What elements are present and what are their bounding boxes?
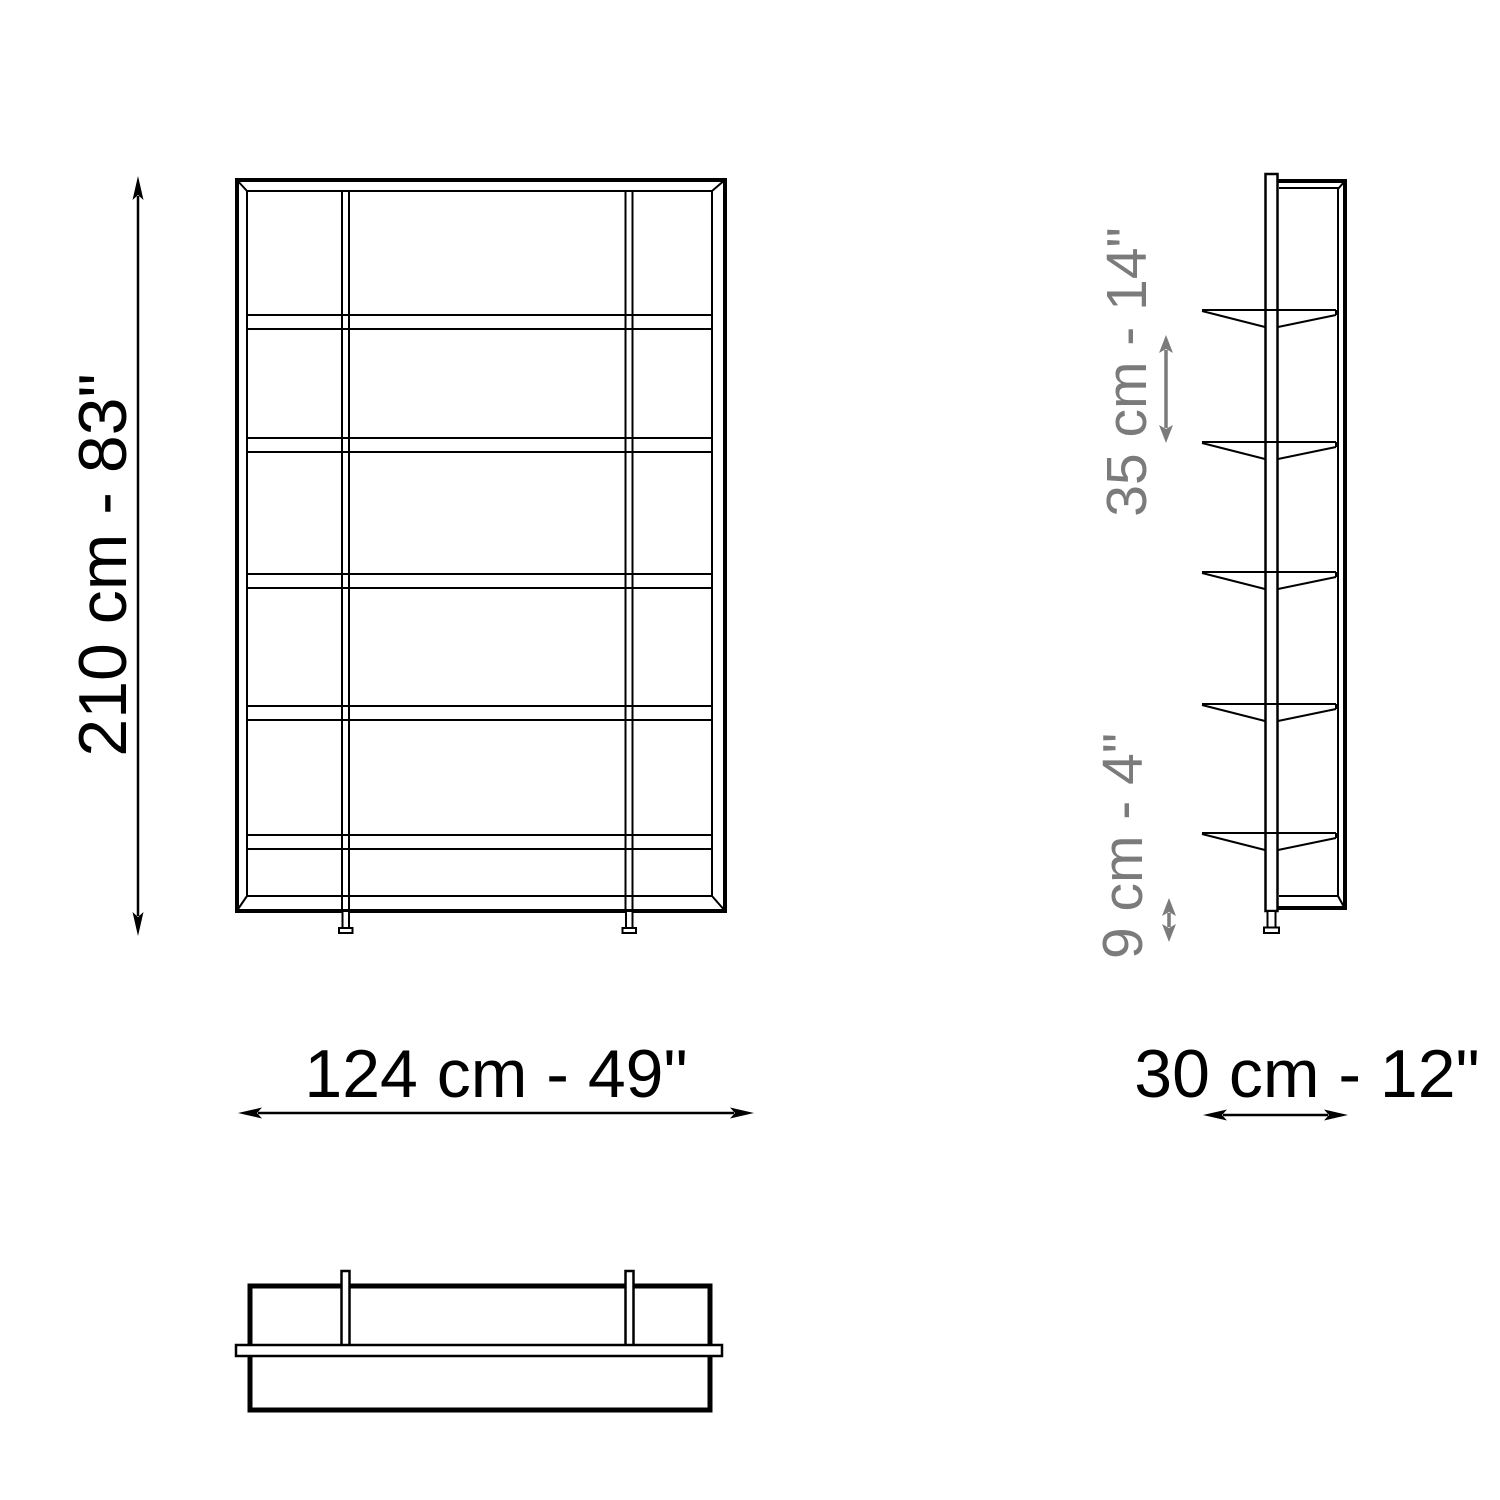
base-height-label: 9 cm - 4": [1091, 733, 1155, 959]
side-panel-outer: [1278, 181, 1345, 908]
width-dimension: 124 cm - 49": [238, 1036, 754, 1119]
top-post: [626, 1271, 634, 1347]
foot-cap: [623, 928, 637, 933]
foot-cap: [1264, 928, 1279, 934]
foot-cap: [339, 928, 353, 933]
height-label: 210 cm - 83": [65, 373, 141, 756]
side-panel-inner: [1279, 188, 1338, 896]
depth-label: 30 cm - 12": [1134, 1036, 1479, 1112]
side-view: [1202, 174, 1345, 933]
front-frame-outer: [237, 180, 725, 911]
top-shelf-bar: [236, 1345, 722, 1356]
side-foot: [1264, 911, 1279, 933]
top-post: [342, 1271, 350, 1347]
top-view: [236, 1271, 722, 1410]
depth-dimension: 30 cm - 12": [1134, 1036, 1479, 1121]
width-label: 124 cm - 49": [304, 1036, 687, 1112]
base-height-dimension: 9 cm - 4": [1091, 733, 1176, 959]
bookshelf-dimension-diagram: 210 cm - 83" 124 cm - 49" 30 cm - 12" 35…: [0, 0, 1500, 1500]
side-leg: [1266, 174, 1278, 911]
shelf-gap-label: 35 cm - 14": [1095, 227, 1159, 517]
height-dimension: 210 cm - 83": [65, 176, 144, 936]
front-feet: [339, 911, 636, 933]
foot-stem: [1268, 911, 1276, 928]
front-posts: [342, 192, 633, 910]
foot-stem: [343, 911, 350, 928]
technical-drawing-sheet: 210 cm - 83" 124 cm - 49" 30 cm - 12" 35…: [0, 0, 1500, 1500]
foot-stem: [626, 911, 633, 928]
front-frame-inner: [247, 191, 712, 896]
shelf-gap-dimension: 35 cm - 14": [1095, 227, 1173, 517]
front-view: [236, 179, 726, 933]
front-shelves: [248, 315, 711, 849]
